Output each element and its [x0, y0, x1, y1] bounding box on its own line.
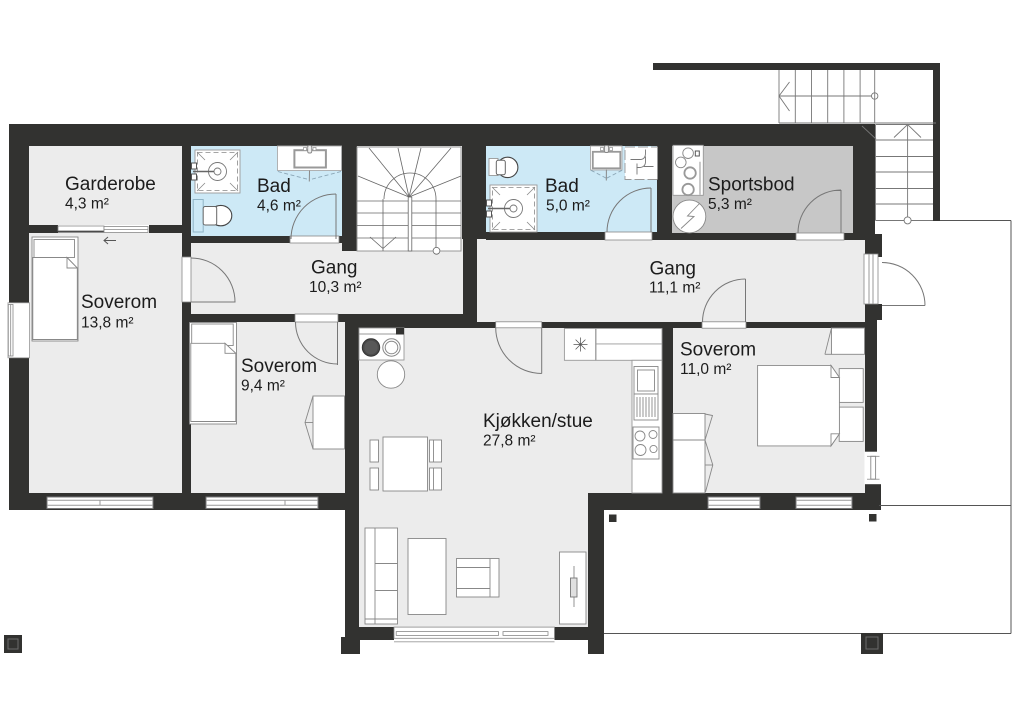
- svg-text:Garderobe: Garderobe: [65, 174, 156, 195]
- svg-text:5,3 m²: 5,3 m²: [708, 196, 752, 213]
- svg-text:Sportsbod: Sportsbod: [708, 175, 795, 196]
- svg-text:Soverom: Soverom: [680, 340, 756, 361]
- svg-text:13,8 m²: 13,8 m²: [81, 315, 134, 332]
- svg-text:Soverom: Soverom: [81, 292, 157, 313]
- svg-text:5,0 m²: 5,0 m²: [546, 198, 590, 215]
- svg-text:Gang: Gang: [311, 258, 357, 279]
- svg-text:10,3 m²: 10,3 m²: [309, 279, 362, 296]
- svg-text:11,1 m²: 11,1 m²: [649, 280, 700, 297]
- svg-text:11,0 m²: 11,0 m²: [680, 361, 731, 378]
- svg-text:Bad: Bad: [545, 176, 579, 197]
- svg-text:Gang: Gang: [650, 259, 696, 280]
- svg-text:4,6 m²: 4,6 m²: [257, 198, 301, 215]
- svg-text:9,4 m²: 9,4 m²: [241, 378, 285, 395]
- svg-text:4,3 m²: 4,3 m²: [65, 196, 109, 213]
- svg-text:Bad: Bad: [257, 176, 291, 197]
- svg-text:Kjøkken/stue: Kjøkken/stue: [483, 411, 593, 432]
- svg-text:Soverom: Soverom: [241, 356, 317, 377]
- svg-text:27,8 m²: 27,8 m²: [483, 433, 536, 450]
